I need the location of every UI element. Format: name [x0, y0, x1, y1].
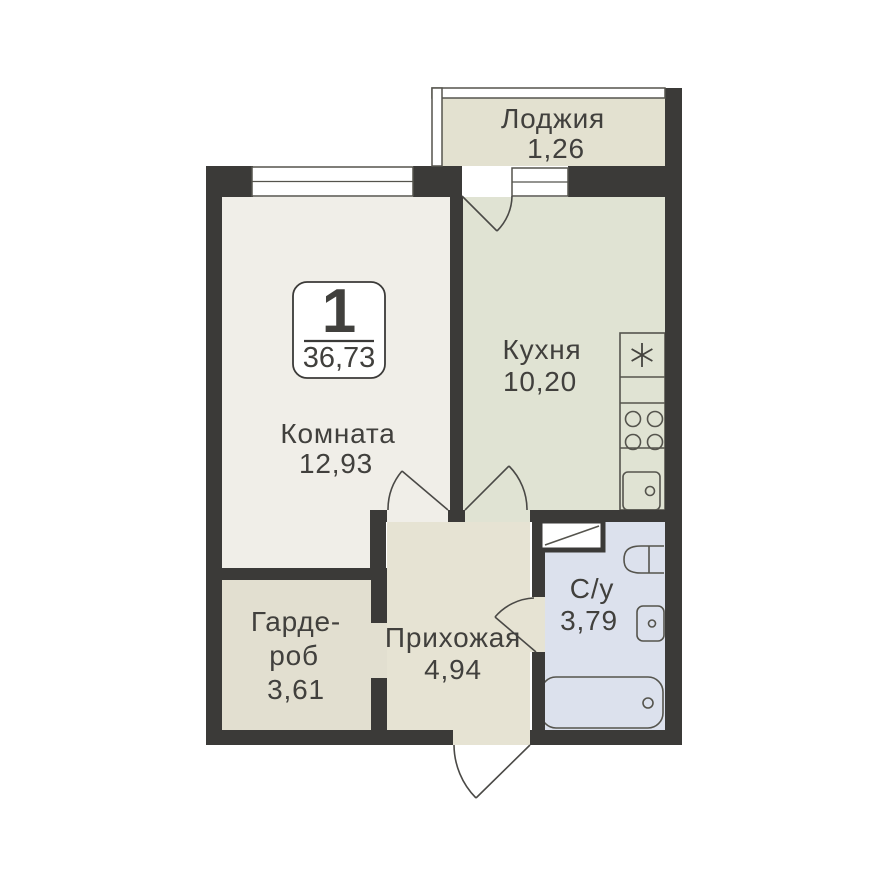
- wall-segment: [371, 678, 387, 730]
- kitchen-area: 10,20: [503, 366, 577, 397]
- hallway-label: Прихожая: [385, 622, 521, 653]
- wall-segment: [206, 166, 222, 745]
- living-label: Комната: [280, 418, 395, 449]
- living-window: [252, 167, 413, 196]
- badge-total-area: 36,73: [303, 342, 376, 374]
- floor-plan: 1 36,73 Лоджия 1,26 Кухня 10,20 Комната …: [0, 0, 886, 886]
- wardrobe-area: 3,61: [267, 674, 325, 705]
- living-floor-lower: [222, 510, 370, 568]
- wall-segment: [206, 568, 387, 580]
- wall-segment: [413, 166, 462, 197]
- hallway-area: 4,94: [424, 654, 482, 685]
- wall-segment: [448, 510, 465, 522]
- wall-segment: [370, 522, 386, 568]
- bathroom-area: 3,79: [560, 605, 618, 636]
- kitchen-label: Кухня: [503, 334, 582, 365]
- apartment-badge: 1 36,73: [293, 277, 385, 378]
- bathroom-label: С/у: [570, 573, 614, 604]
- loggia-area: 1,26: [527, 133, 585, 164]
- wall-segment: [568, 166, 665, 197]
- entrance-door-gap: [453, 730, 530, 745]
- wardrobe-label-line2: роб: [269, 640, 319, 671]
- wall-segment: [450, 197, 463, 510]
- loggia-label: Лоджия: [501, 103, 605, 134]
- vent-shaft-icon: [540, 521, 603, 550]
- wall-segment: [371, 580, 387, 623]
- floor-plan-canvas: 1 36,73 Лоджия 1,26 Кухня 10,20 Комната …: [0, 0, 886, 886]
- wall-segment: [665, 88, 682, 745]
- living-door-gap: [387, 510, 448, 522]
- kitchen-door-gap: [465, 510, 530, 522]
- wall-segment: [206, 166, 253, 197]
- kitchen-window: [512, 168, 568, 196]
- wall-segment: [532, 652, 545, 730]
- wall-segment: [370, 510, 387, 522]
- wardrobe-label-line1: Гарде-: [251, 606, 341, 637]
- entrance-door: [454, 745, 530, 798]
- bathroom-door-gap: [530, 597, 545, 652]
- wall-segment: [530, 730, 682, 745]
- wall-segment: [206, 730, 453, 745]
- badge-room-count: 1: [322, 277, 356, 346]
- living-area: 12,93: [299, 448, 373, 479]
